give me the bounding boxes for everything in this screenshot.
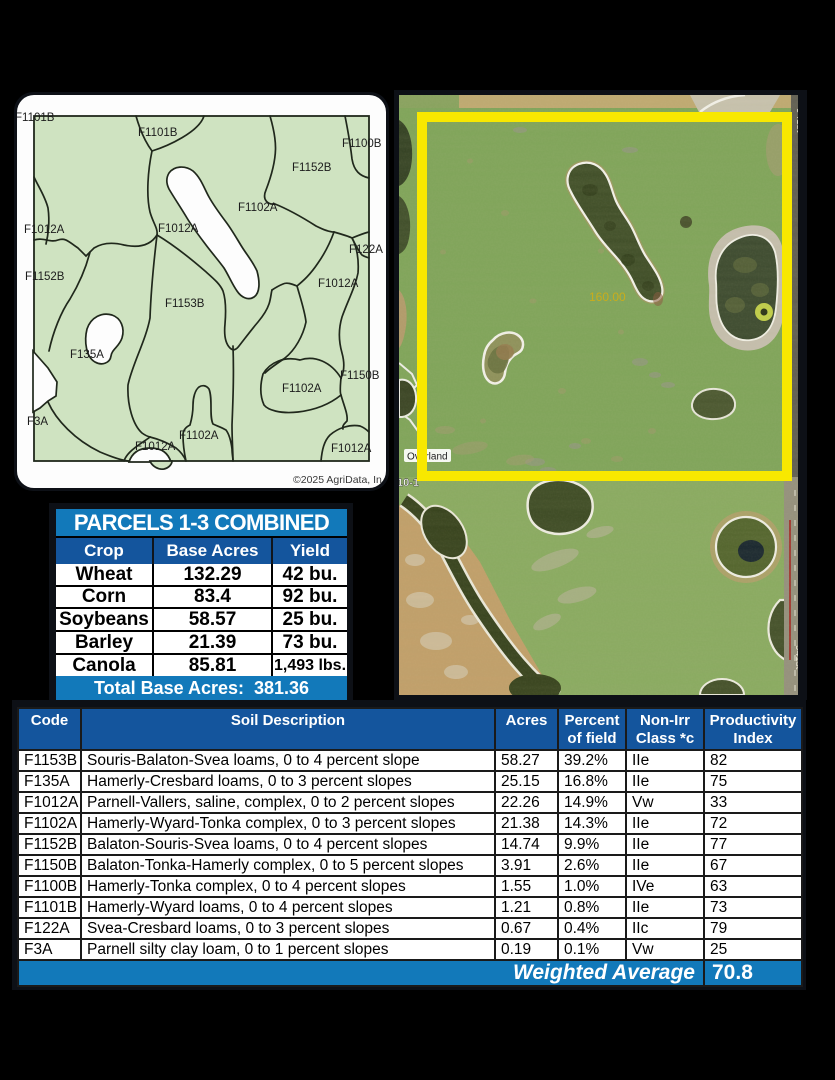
svg-text:F1102A: F1102A	[179, 430, 219, 442]
svg-text:F1153B: F1153B	[165, 298, 205, 310]
svg-text:©2025 AgriData, In: ©2025 AgriData, In	[293, 474, 382, 486]
svg-text:F1152B: F1152B	[25, 271, 65, 283]
svg-text:F1152B: F1152B	[292, 162, 332, 174]
svg-text:F1012A: F1012A	[135, 441, 176, 453]
svg-text:F1012A: F1012A	[331, 443, 372, 455]
svg-text:F1012A: F1012A	[318, 278, 359, 290]
svg-text:F1101B: F1101B	[17, 112, 55, 124]
svg-text:F1100B: F1100B	[342, 138, 382, 150]
svg-text:10-1: 10-1	[399, 477, 419, 489]
svg-text:F122A: F122A	[349, 244, 383, 256]
svg-text:F1101B: F1101B	[138, 127, 178, 139]
svg-text:F1012A: F1012A	[158, 223, 199, 235]
svg-text:F1012A: F1012A	[24, 224, 65, 236]
svg-text:941st: 941st	[793, 645, 798, 670]
svg-text:F135A: F135A	[70, 349, 104, 361]
svg-text:F3A: F3A	[27, 416, 48, 428]
svg-text:F1150B: F1150B	[340, 370, 380, 382]
svg-text:F1102A: F1102A	[282, 383, 322, 395]
svg-text:Overland: Overland	[407, 452, 448, 463]
svg-text:160.00: 160.00	[589, 290, 626, 304]
svg-text:941st: 941st	[794, 108, 798, 133]
svg-text:F1102A: F1102A	[238, 202, 278, 214]
